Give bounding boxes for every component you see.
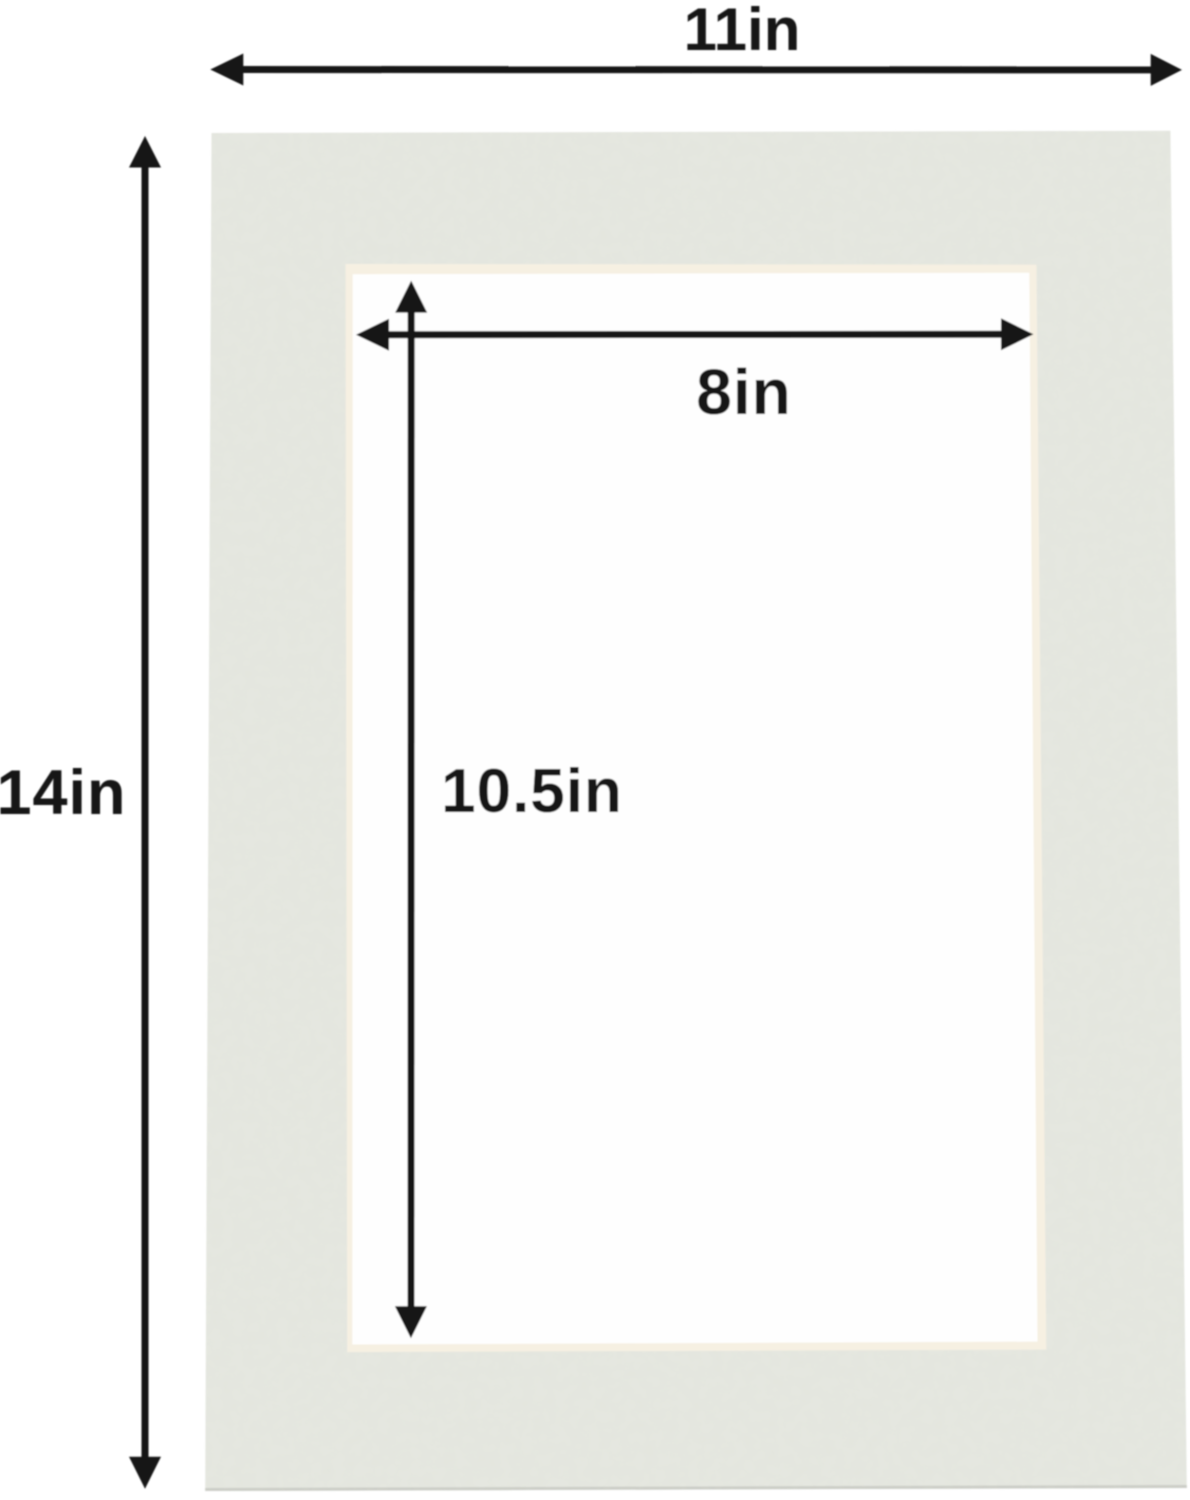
- svg-text:8in: 8in: [696, 356, 791, 428]
- svg-text:14in: 14in: [0, 758, 127, 828]
- svg-text:11in: 11in: [684, 0, 801, 63]
- svg-text:10.5in: 10.5in: [441, 757, 623, 826]
